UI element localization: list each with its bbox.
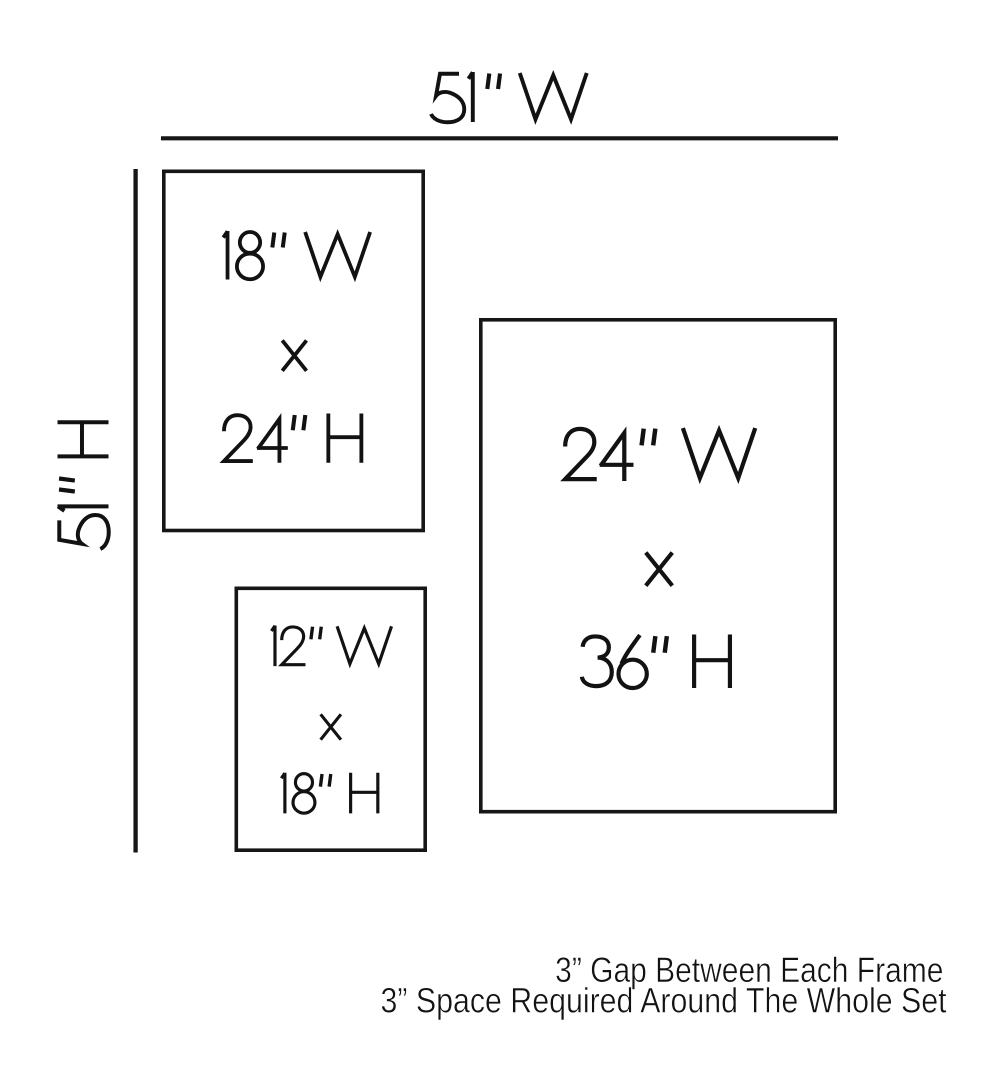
svg-text:3” Space Required Around The W: 3” Space Required Around The Whole Set [380, 981, 946, 1021]
